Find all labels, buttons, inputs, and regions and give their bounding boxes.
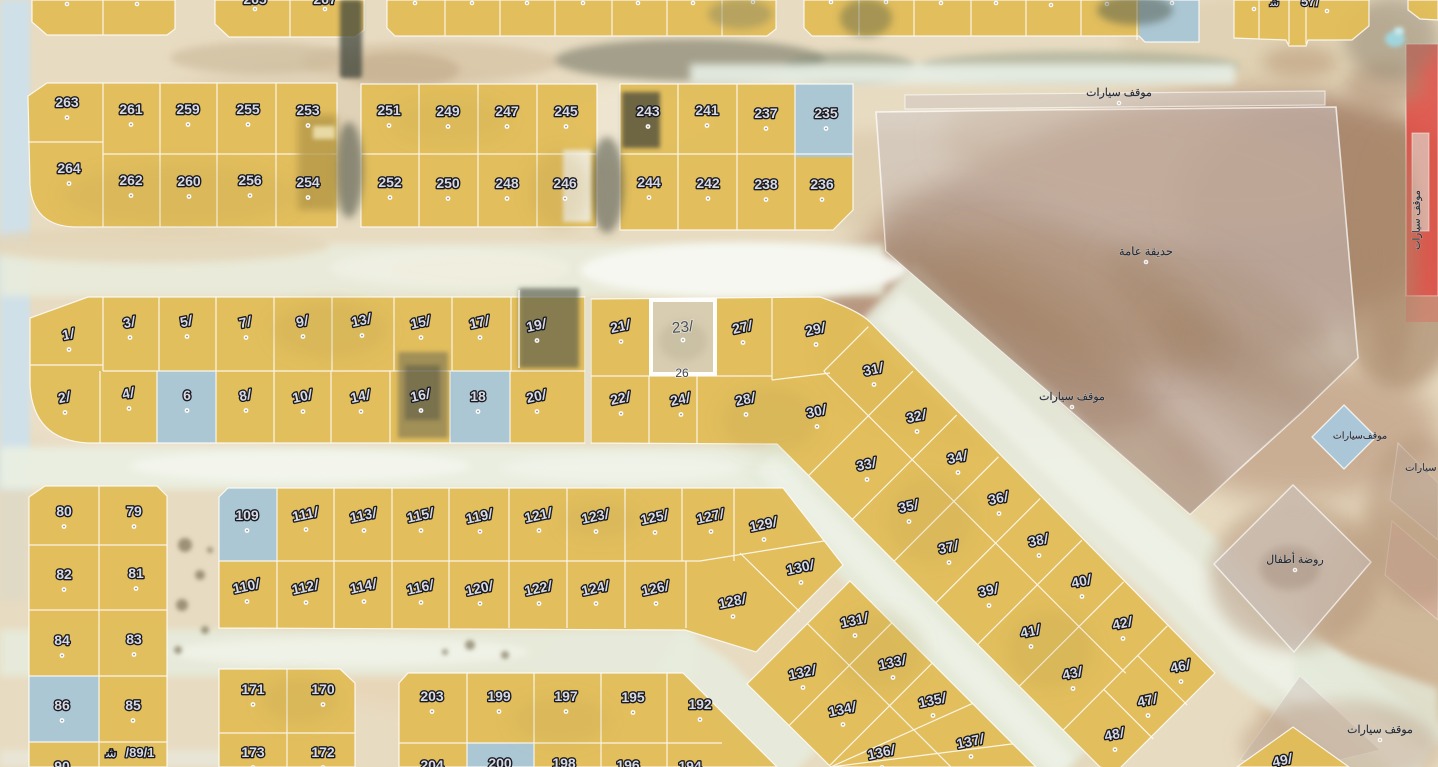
svg-text:245: 245 <box>554 103 578 119</box>
svg-text:250: 250 <box>436 175 460 191</box>
svg-text:170: 170 <box>311 681 335 697</box>
svg-text:254: 254 <box>296 174 320 190</box>
svg-text:248: 248 <box>495 175 519 191</box>
svg-text:196: 196 <box>616 757 640 767</box>
svg-text:199: 199 <box>487 688 511 704</box>
svg-text:82: 82 <box>56 566 72 582</box>
svg-text:259: 259 <box>176 101 200 117</box>
svg-text:86: 86 <box>54 697 70 713</box>
svg-text:/89/1: /89/1 <box>126 745 155 760</box>
svg-text:241: 241 <box>695 102 719 118</box>
svg-text:246: 246 <box>553 175 577 191</box>
svg-text:265: 265 <box>243 0 267 7</box>
svg-text:244: 244 <box>637 174 661 190</box>
svg-text:26: 26 <box>675 366 689 380</box>
svg-text:200: 200 <box>488 755 512 767</box>
svg-text:194: 194 <box>678 758 702 767</box>
svg-text:238: 238 <box>754 176 778 192</box>
svg-text:195: 195 <box>621 689 645 705</box>
svg-text:243: 243 <box>636 103 660 119</box>
svg-text:57/: 57/ <box>1301 0 1319 9</box>
svg-text:235: 235 <box>814 105 838 121</box>
svg-text:256: 256 <box>238 172 262 188</box>
svg-text:85: 85 <box>125 697 141 713</box>
svg-text:247: 247 <box>495 103 519 119</box>
svg-text:173: 173 <box>241 744 265 760</box>
svg-text:261: 261 <box>119 101 143 117</box>
svg-text:263: 263 <box>55 94 79 110</box>
svg-text:264: 264 <box>57 160 81 176</box>
svg-text:84: 84 <box>54 632 70 648</box>
svg-text:171: 171 <box>241 681 265 697</box>
svg-text:267: 267 <box>313 0 337 7</box>
svg-text:109: 109 <box>235 507 259 523</box>
svg-text:197: 197 <box>554 688 578 704</box>
svg-text:80: 80 <box>56 503 72 519</box>
svg-text:253: 253 <box>296 102 320 118</box>
svg-text:203: 203 <box>420 688 444 704</box>
svg-text:6: 6 <box>183 387 191 403</box>
svg-text:192: 192 <box>688 696 712 712</box>
svg-text:236: 236 <box>810 176 834 192</box>
svg-text:237: 237 <box>754 105 778 121</box>
svg-text:204: 204 <box>420 757 444 767</box>
svg-text:23/: 23/ <box>671 318 695 337</box>
svg-text:249: 249 <box>436 103 460 119</box>
svg-text:260: 260 <box>177 173 201 189</box>
svg-text:251: 251 <box>377 102 401 118</box>
svg-text:198: 198 <box>552 755 576 767</box>
svg-text:79: 79 <box>126 503 142 519</box>
svg-text:81: 81 <box>128 565 144 581</box>
svg-text:262: 262 <box>119 172 143 188</box>
svg-text:252: 252 <box>378 174 402 190</box>
svg-text:83: 83 <box>126 631 142 647</box>
svg-text:90: 90 <box>54 758 70 767</box>
svg-text:242: 242 <box>696 175 720 191</box>
svg-text:172: 172 <box>311 744 335 760</box>
svg-text:18: 18 <box>470 388 486 404</box>
svg-text:255: 255 <box>236 101 260 117</box>
